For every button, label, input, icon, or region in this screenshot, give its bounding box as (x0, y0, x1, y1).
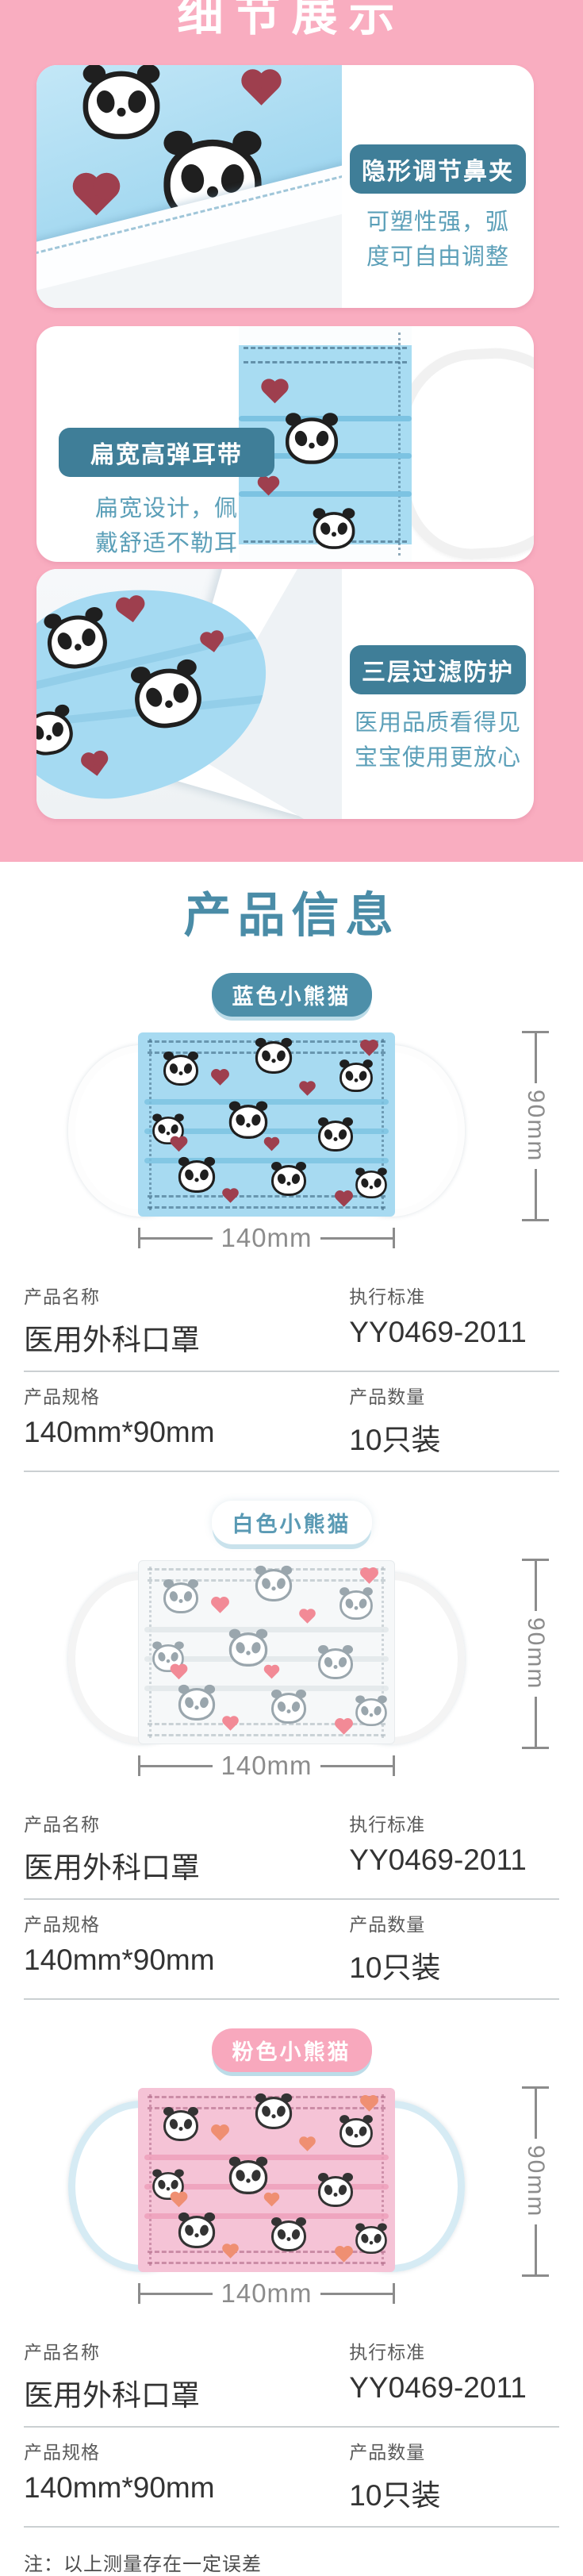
panda-icon (163, 1055, 198, 1086)
variant-badge: 蓝色小熊猫 (212, 973, 372, 1017)
panda-icon (178, 2216, 215, 2248)
field-value: 140mm*90mm (24, 1416, 349, 1449)
stitch-line (149, 1039, 152, 1210)
mask-figure: 90mm 140mm (29, 1555, 554, 1784)
height-dimension: 90mm (520, 1031, 551, 1221)
field-value: YY0469-2011 (349, 1844, 559, 1877)
panda-icon (228, 1105, 267, 1139)
panda-icon (318, 1121, 353, 1152)
feature-desc-line: 扁宽设计，佩 (59, 491, 274, 526)
panda-icon (355, 1698, 387, 1726)
heart-icon (213, 1071, 227, 1085)
panda-icon (271, 2220, 306, 2251)
feature-desc-line: 宝宝使用更放心 (355, 740, 521, 775)
detail-showcase-section: 细节展示 隐形调节鼻夹 可塑性强，弧 度可自由调整 扁宽高弹耳带 扁 (0, 0, 583, 862)
panda-icon (163, 2110, 198, 2141)
heart-icon (336, 1720, 351, 1734)
panda-icon (255, 1569, 292, 1601)
table-row: 产品名称 医用外科口罩 执行标准 YY0469-2011 (24, 1800, 559, 1900)
panda-icon (163, 1582, 198, 1613)
mask-top-edge (239, 326, 412, 345)
field-value: 10只装 (349, 2471, 559, 2514)
heart-icon (224, 1190, 237, 1203)
panda-icon (228, 1632, 267, 1667)
stitch-line (244, 361, 407, 363)
field-value: YY0469-2011 (349, 1316, 559, 1349)
stitch-line (149, 2094, 152, 2266)
panda-icon (271, 1165, 306, 1196)
dimension-label-height: 90mm (522, 1611, 549, 1696)
feature-description: 医用品质看得见 宝宝使用更放心 (355, 706, 521, 775)
width-dimension: 140mm (138, 1751, 395, 1781)
field-label: 产品规格 (24, 2437, 349, 2464)
stitch-line (149, 1567, 152, 1738)
feature-desc-line: 戴舒适不勒耳 (59, 526, 274, 561)
mask-stage (68, 1560, 465, 1744)
table-row: 产品规格 140mm*90mm 产品数量 10只装 (24, 1372, 559, 1472)
field-label: 产品规格 (24, 1909, 349, 1936)
product-info-title: 产品信息 (0, 862, 583, 944)
heart-icon (245, 74, 277, 106)
heart-icon (264, 382, 286, 404)
stitch-line (148, 2262, 385, 2264)
heart-icon (78, 178, 116, 216)
heart-icon (213, 2126, 227, 2140)
detail-card-ear-strap: 扁宽高弹耳带 扁宽设计，佩 戴舒适不勒耳 (36, 326, 534, 562)
mask-stage (68, 1032, 465, 1217)
heart-icon (224, 2245, 237, 2259)
panda-icon (318, 1648, 353, 1679)
field-value: 10只装 (349, 1416, 559, 1459)
field-value: 医用外科口罩 (24, 2371, 349, 2414)
panda-icon (255, 2097, 292, 2129)
variant-white-panda: 白色小熊猫 90mm (0, 1501, 583, 2000)
heart-icon (172, 1137, 186, 1151)
field-value: 140mm*90mm (24, 1944, 349, 1977)
feature-badge: 三层过滤防护 (350, 645, 526, 694)
field-label: 执行标准 (349, 2337, 559, 2364)
info-table: 产品名称 医用外科口罩 执行标准 YY0469-2011 产品规格 140mm*… (24, 1272, 559, 1472)
panda-icon (44, 611, 111, 672)
mask-closeup-photo (36, 65, 342, 308)
heart-icon (301, 1610, 315, 1624)
field-label: 产品数量 (349, 2437, 559, 2464)
field-label: 产品规格 (24, 1382, 349, 1409)
detail-showcase-title: 细节展示 (0, 0, 583, 41)
table-row: 产品名称 医用外科口罩 执行标准 YY0469-2011 (24, 2328, 559, 2428)
field-label: 执行标准 (349, 1282, 559, 1309)
panda-icon (355, 1171, 387, 1198)
variant-pink-panda: 粉色小熊猫 90mm (0, 2028, 583, 2528)
field-value: 10只装 (349, 1944, 559, 1986)
mask-figure: 90mm 140mm (29, 1028, 554, 1256)
feature-panel: 三层过滤防护 医用品质看得见 宝宝使用更放心 (342, 569, 534, 819)
heart-icon (301, 1082, 315, 1096)
dimension-label-height: 90mm (522, 2139, 549, 2224)
height-dimension: 90mm (520, 2086, 551, 2277)
panda-icon (313, 512, 355, 549)
info-table: 产品名称 医用外科口罩 执行标准 YY0469-2011 产品规格 140mm*… (24, 1800, 559, 2000)
dimension-label-height: 90mm (522, 1083, 549, 1168)
table-row: 产品名称 医用外科口罩 执行标准 YY0469-2011 (24, 1272, 559, 1372)
stitch-line (398, 333, 401, 556)
field-value: 医用外科口罩 (24, 1316, 349, 1359)
mask-layers-photo (36, 569, 342, 819)
detail-card-nose-clip: 隐形调节鼻夹 可塑性强，弧 度可自由调整 (36, 65, 534, 308)
field-label: 产品名称 (24, 2337, 349, 2364)
heart-icon (120, 599, 143, 622)
feature-badge: 扁宽高弹耳带 (59, 428, 274, 477)
panda-icon (82, 71, 159, 139)
panda-icon (286, 417, 338, 464)
field-label: 产品名称 (24, 1809, 349, 1836)
feature-description: 扁宽设计，佩 戴舒适不勒耳 (59, 491, 274, 561)
dimension-label-width: 140mm (213, 1751, 320, 1781)
panda-icon (355, 2226, 387, 2254)
panda-icon (339, 1063, 373, 1092)
heart-icon (266, 1666, 278, 1678)
field-label: 产品数量 (349, 1909, 559, 1936)
panda-icon (178, 1160, 215, 1193)
table-row: 产品规格 140mm*90mm 产品数量 10只装 (24, 2428, 559, 2528)
feature-desc-line: 医用品质看得见 (355, 706, 521, 740)
note-text: 注：以上测量存在一定误差 (24, 2548, 559, 2576)
feature-badge: 隐形调节鼻夹 (350, 144, 526, 194)
heart-icon (266, 2193, 278, 2206)
feature-description: 可塑性强，弧 度可自由调整 (366, 205, 509, 275)
variant-badge: 白色小熊猫 (212, 1501, 372, 1544)
field-label: 产品名称 (24, 1282, 349, 1309)
ear-loop-icon (392, 344, 534, 562)
mask-image (138, 1032, 395, 1217)
mask-stage (68, 2088, 465, 2272)
width-dimension: 140mm (138, 1223, 395, 1253)
heart-icon (172, 2193, 186, 2206)
panda-icon (271, 1693, 306, 1724)
mask-image (138, 1560, 395, 1744)
heart-icon (336, 1192, 351, 1206)
heart-icon (224, 1717, 237, 1731)
feature-desc-line: 可塑性强，弧 (366, 205, 509, 240)
dimension-label-width: 140mm (213, 1223, 320, 1253)
field-value: YY0469-2011 (349, 2371, 559, 2405)
field-label: 产品数量 (349, 1382, 559, 1409)
stitch-line (148, 1734, 385, 1736)
panda-icon (339, 1590, 373, 1620)
variant-badge: 粉色小熊猫 (212, 2028, 372, 2072)
heart-icon (172, 1665, 186, 1678)
dimension-label-width: 140mm (213, 2278, 320, 2309)
detail-card-three-layer: 三层过滤防护 医用品质看得见 宝宝使用更放心 (36, 569, 534, 819)
variant-blue-panda: 蓝色小熊猫 90mm (0, 973, 583, 1472)
product-info-section: 产品信息 蓝色小熊猫 (0, 862, 583, 2576)
field-label: 执行标准 (349, 1809, 559, 1836)
panda-icon (178, 1688, 215, 1721)
feature-panel: 扁宽高弹耳带 扁宽设计，佩 戴舒适不勒耳 (59, 428, 274, 561)
heart-icon (301, 2138, 315, 2151)
stitch-line (244, 347, 407, 349)
stitch-line (148, 1206, 385, 1209)
info-table: 产品名称 医用外科口罩 执行标准 YY0469-2011 产品规格 140mm*… (24, 2328, 559, 2528)
height-dimension: 90mm (520, 1559, 551, 1749)
panda-icon (255, 1041, 292, 1074)
feature-desc-line: 度可自由调整 (366, 240, 509, 275)
panda-icon (131, 663, 205, 732)
mask-image (138, 2088, 395, 2272)
panda-icon (318, 2176, 353, 2207)
field-value: 医用外科口罩 (24, 1844, 349, 1886)
mask-figure: 90mm 140mm (29, 2083, 554, 2312)
panda-icon (339, 2118, 373, 2147)
panda-icon (228, 2160, 267, 2194)
table-row: 产品规格 140mm*90mm 产品数量 10只装 (24, 1900, 559, 2000)
heart-icon (336, 2247, 351, 2262)
field-value: 140mm*90mm (24, 2471, 349, 2505)
feature-panel: 隐形调节鼻夹 可塑性强，弧 度可自由调整 (342, 65, 534, 308)
heart-icon (213, 1598, 227, 1613)
heart-icon (85, 755, 106, 776)
width-dimension: 140mm (138, 2278, 395, 2309)
heart-icon (266, 1138, 278, 1151)
